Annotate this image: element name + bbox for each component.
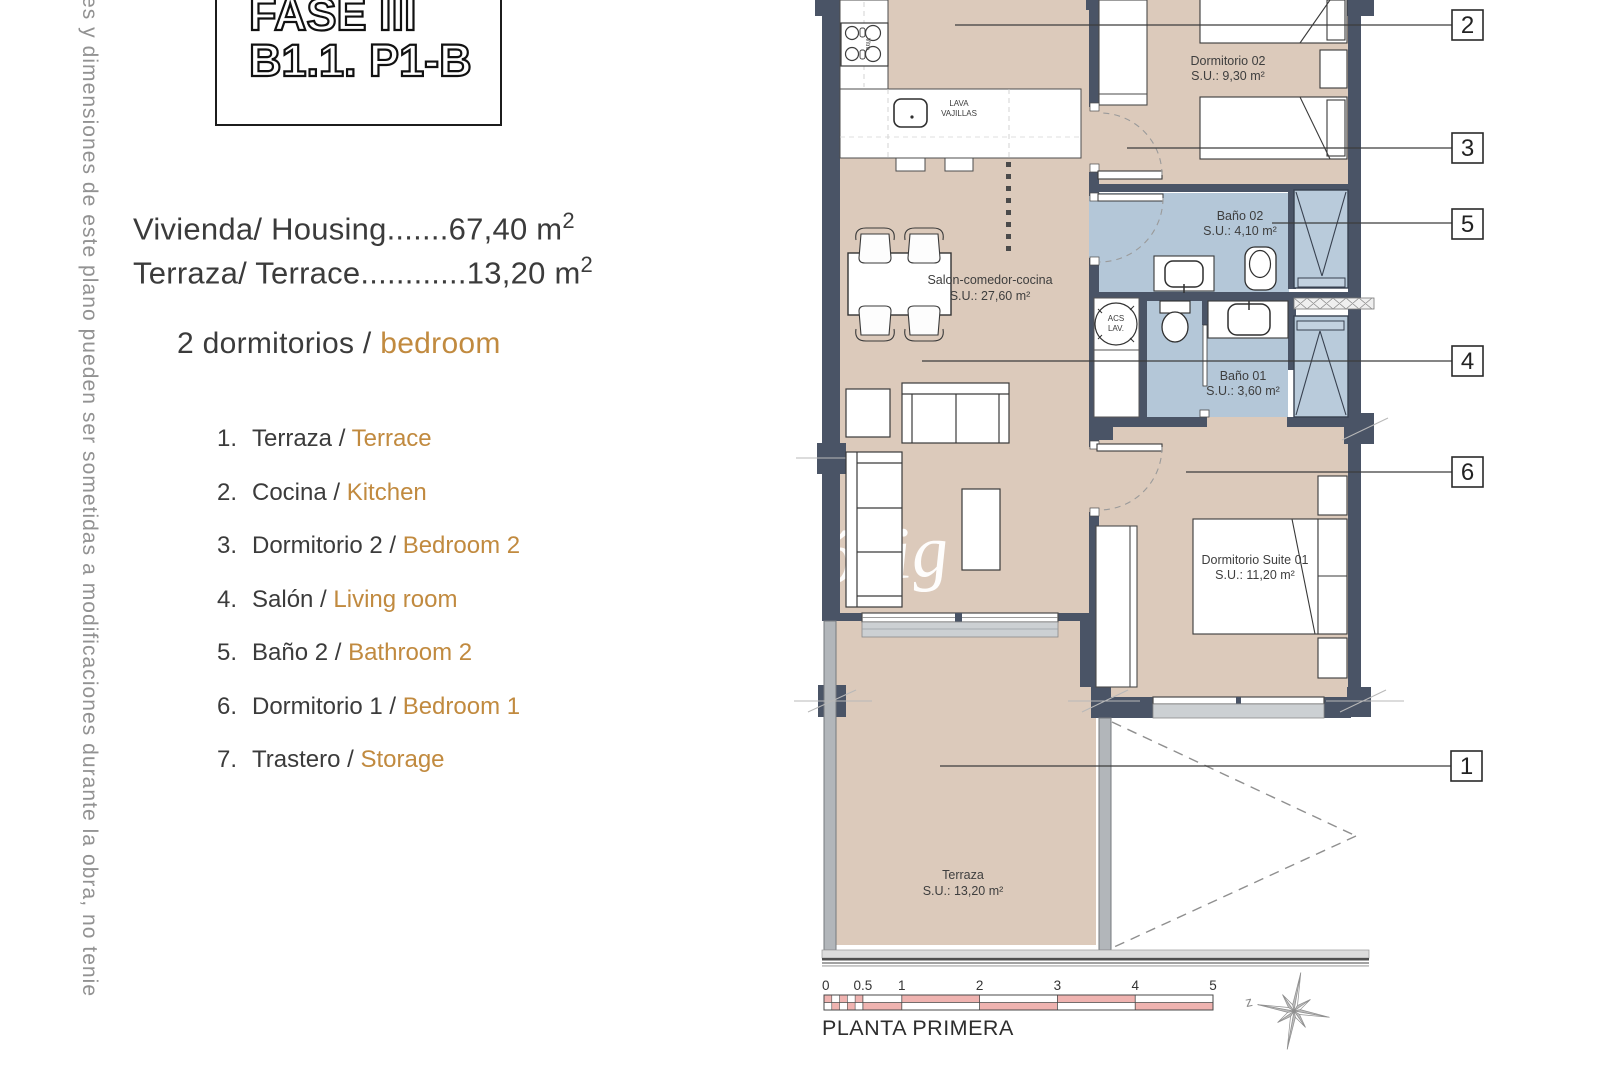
svg-text:Salon-comedor-cocina: Salon-comedor-cocina: [927, 273, 1052, 287]
svg-text:Dormitorio 02: Dormitorio 02: [1190, 54, 1265, 68]
svg-text:3: 3: [1054, 978, 1062, 993]
svg-text:Baño 01: Baño 01: [1220, 369, 1267, 383]
svg-text:4: 4: [1131, 978, 1139, 993]
svg-text:Baño 02: Baño 02: [1217, 209, 1264, 223]
svg-text:LAVA: LAVA: [949, 99, 969, 108]
svg-text:0.5: 0.5: [854, 978, 873, 993]
svg-text:Dormitorio Suite 01: Dormitorio Suite 01: [1202, 553, 1309, 567]
svg-text:S.U.: 9,30 m²: S.U.: 9,30 m²: [1191, 69, 1265, 83]
svg-text:z: z: [1244, 993, 1254, 1010]
svg-text:S.U.: 4,10 m²: S.U.: 4,10 m²: [1203, 224, 1277, 238]
svg-text:S.U.: 13,20 m²: S.U.: 13,20 m²: [923, 884, 1004, 898]
svg-text:S.U.: 11,20 m²: S.U.: 11,20 m²: [1215, 568, 1295, 582]
svg-text:2: 2: [1461, 12, 1474, 39]
svg-text:1: 1: [1460, 753, 1473, 780]
svg-text:5: 5: [1209, 978, 1217, 993]
svg-text:Vitro: Vitro: [864, 38, 870, 51]
svg-text:S.U.: 27,60 m²: S.U.: 27,60 m²: [950, 289, 1031, 303]
svg-text:Terraza: Terraza: [942, 868, 984, 882]
svg-text:3: 3: [1461, 135, 1474, 162]
svg-text:PLANTA PRIMERA: PLANTA PRIMERA: [822, 1016, 1014, 1040]
svg-text:4: 4: [1461, 348, 1474, 375]
svg-text:ACS: ACS: [1108, 314, 1124, 323]
svg-text:S.U.: 3,60 m²: S.U.: 3,60 m²: [1206, 384, 1280, 398]
svg-text:VAJILLAS: VAJILLAS: [941, 109, 977, 118]
svg-text:0: 0: [822, 978, 830, 993]
svg-text:5: 5: [1461, 211, 1474, 238]
svg-text:2: 2: [976, 978, 984, 993]
svg-text:6: 6: [1461, 459, 1474, 486]
svg-text:LAV.: LAV.: [1108, 324, 1124, 333]
svg-text:1: 1: [898, 978, 906, 993]
